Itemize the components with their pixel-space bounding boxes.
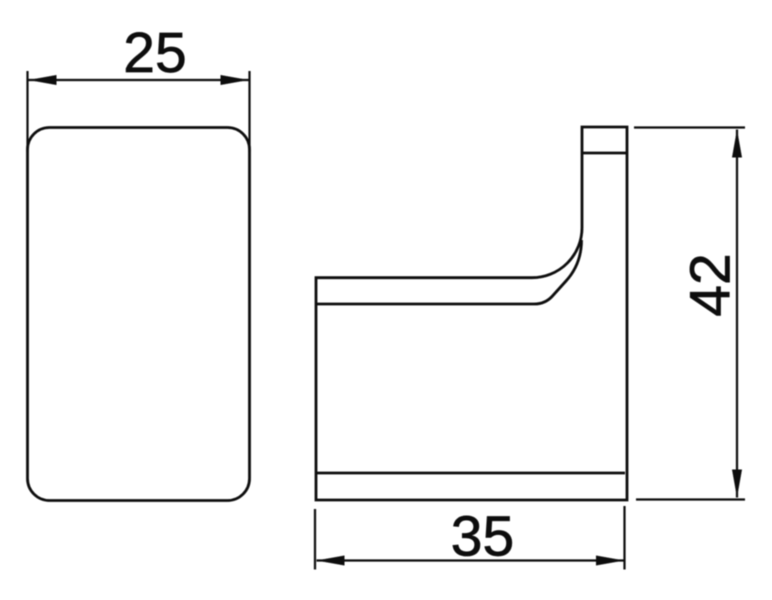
svg-text:25: 25 (123, 21, 186, 85)
svg-text:42: 42 (679, 253, 743, 316)
svg-text:35: 35 (451, 505, 514, 569)
